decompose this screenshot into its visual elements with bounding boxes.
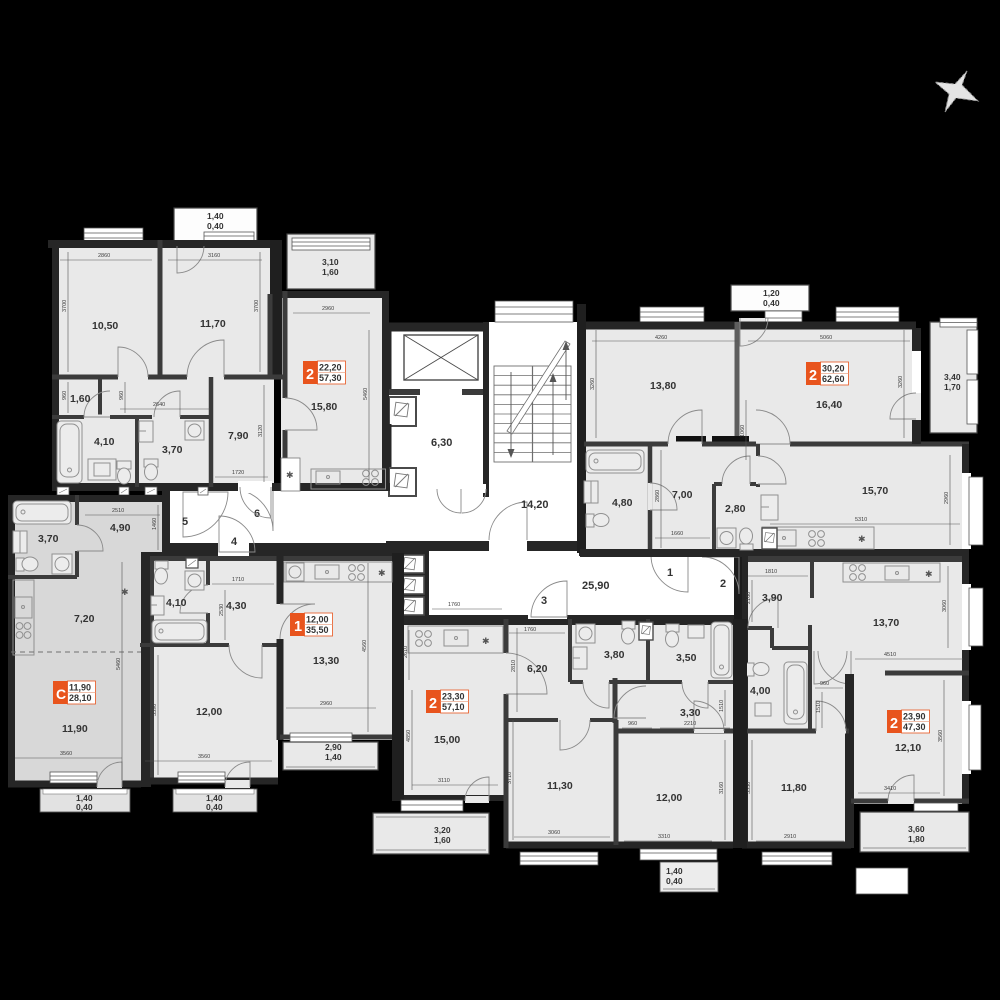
svg-text:5460: 5460 (363, 388, 369, 400)
svg-text:2640: 2640 (153, 402, 165, 408)
svg-text:1: 1 (294, 619, 302, 635)
svg-text:0,40: 0,40 (206, 802, 223, 812)
svg-text:10,50: 10,50 (92, 320, 118, 332)
svg-text:3310: 3310 (658, 834, 670, 840)
svg-text:3,30: 3,30 (680, 707, 701, 719)
svg-text:5060: 5060 (820, 335, 832, 341)
svg-text:3,70: 3,70 (162, 444, 183, 456)
svg-text:22,20: 22,20 (319, 363, 342, 373)
svg-text:0,40: 0,40 (763, 298, 780, 308)
svg-text:30,20: 30,20 (822, 364, 845, 374)
svg-text:3060: 3060 (548, 830, 560, 836)
svg-text:2210: 2210 (684, 721, 696, 727)
svg-text:6,20: 6,20 (527, 663, 548, 675)
svg-text:1760: 1760 (448, 602, 460, 608)
svg-text:960: 960 (119, 391, 125, 400)
svg-text:1,40: 1,40 (325, 752, 342, 762)
svg-text:5310: 5310 (855, 517, 867, 523)
svg-text:3,20: 3,20 (434, 825, 451, 835)
svg-text:4510: 4510 (884, 652, 896, 658)
svg-text:3,70: 3,70 (38, 533, 59, 545)
svg-text:4560: 4560 (362, 640, 368, 652)
svg-text:1: 1 (667, 567, 673, 579)
svg-text:16,40: 16,40 (816, 399, 842, 411)
svg-text:5460: 5460 (116, 658, 122, 670)
svg-text:7,90: 7,90 (228, 430, 249, 442)
svg-text:23,90: 23,90 (903, 712, 926, 722)
svg-text:2: 2 (429, 696, 437, 712)
svg-text:3560: 3560 (198, 754, 210, 760)
svg-text:960: 960 (62, 391, 68, 400)
svg-text:1,60: 1,60 (322, 267, 339, 277)
svg-text:4260: 4260 (655, 335, 667, 341)
svg-text:3160: 3160 (719, 782, 725, 794)
svg-text:3260: 3260 (590, 378, 596, 390)
svg-text:2810: 2810 (511, 660, 517, 672)
svg-text:2530: 2530 (219, 604, 225, 616)
svg-text:3,60: 3,60 (908, 824, 925, 834)
svg-text:2: 2 (306, 367, 314, 383)
svg-text:11,70: 11,70 (200, 318, 226, 330)
svg-text:3060: 3060 (942, 600, 948, 612)
svg-text:2960: 2960 (944, 492, 950, 504)
svg-text:960: 960 (820, 681, 829, 687)
svg-text:13,80: 13,80 (650, 380, 676, 392)
svg-text:960: 960 (628, 721, 637, 727)
svg-text:4,80: 4,80 (612, 497, 633, 509)
svg-text:4,30: 4,30 (226, 600, 247, 612)
svg-text:3110: 3110 (438, 778, 450, 784)
svg-text:C: C (56, 686, 66, 702)
svg-text:2860: 2860 (655, 490, 661, 502)
svg-text:3,80: 3,80 (604, 649, 625, 661)
svg-text:7,00: 7,00 (672, 489, 693, 501)
svg-text:3710: 3710 (507, 772, 513, 784)
svg-text:3,40: 3,40 (944, 372, 961, 382)
svg-text:2: 2 (890, 716, 898, 732)
svg-text:3: 3 (541, 595, 547, 607)
svg-text:11,90: 11,90 (69, 683, 91, 693)
svg-text:14,20: 14,20 (521, 499, 549, 511)
svg-text:15,00: 15,00 (434, 734, 460, 746)
svg-text:0,40: 0,40 (76, 802, 93, 812)
svg-text:✱: ✱ (858, 534, 866, 544)
svg-text:2160: 2160 (746, 592, 752, 604)
svg-text:0,40: 0,40 (207, 221, 224, 231)
svg-text:15,70: 15,70 (862, 485, 888, 497)
svg-text:✱: ✱ (378, 568, 386, 578)
svg-text:3,50: 3,50 (676, 652, 697, 664)
svg-text:62,60: 62,60 (822, 374, 845, 384)
svg-text:4,10: 4,10 (166, 597, 187, 609)
svg-text:1,70: 1,70 (944, 382, 961, 392)
svg-text:2960: 2960 (322, 306, 334, 312)
svg-text:2510: 2510 (112, 508, 124, 514)
svg-text:2,80: 2,80 (725, 503, 746, 515)
svg-text:3700: 3700 (62, 300, 68, 312)
svg-text:1460: 1460 (152, 518, 158, 530)
svg-text:1,20: 1,20 (763, 288, 780, 298)
svg-text:3700: 3700 (254, 300, 260, 312)
svg-text:57,10: 57,10 (442, 702, 465, 712)
svg-text:1660: 1660 (671, 531, 683, 537)
svg-text:2960: 2960 (320, 701, 332, 707)
svg-text:3390: 3390 (152, 704, 158, 716)
svg-text:2860: 2860 (98, 253, 110, 259)
svg-text:1720: 1720 (232, 470, 244, 476)
svg-text:0,40: 0,40 (666, 876, 683, 886)
svg-text:1,80: 1,80 (908, 834, 925, 844)
svg-text:1710: 1710 (232, 577, 244, 583)
svg-text:57,30: 57,30 (319, 373, 342, 383)
svg-text:4850: 4850 (406, 730, 412, 742)
svg-text:1510: 1510 (719, 700, 725, 712)
svg-text:35,50: 35,50 (306, 625, 329, 635)
svg-text:4: 4 (231, 536, 238, 548)
svg-text:2,90: 2,90 (325, 742, 342, 752)
svg-text:✱: ✱ (925, 569, 933, 579)
svg-text:12,00: 12,00 (196, 706, 222, 718)
svg-text:✱: ✱ (286, 470, 294, 480)
svg-text:5: 5 (182, 516, 188, 528)
svg-text:11,90: 11,90 (62, 723, 88, 735)
svg-text:3260: 3260 (898, 376, 904, 388)
svg-text:3560: 3560 (60, 751, 72, 757)
svg-text:4,00: 4,00 (750, 685, 771, 697)
svg-text:2: 2 (720, 578, 726, 590)
svg-text:25,90: 25,90 (582, 580, 610, 592)
svg-text:11,30: 11,30 (547, 780, 573, 792)
svg-text:1060: 1060 (740, 425, 746, 437)
svg-text:1,40: 1,40 (666, 866, 683, 876)
svg-text:23,30: 23,30 (442, 692, 465, 702)
svg-text:3,90: 3,90 (762, 592, 783, 604)
svg-text:1510: 1510 (816, 701, 822, 713)
svg-text:12,00: 12,00 (306, 615, 329, 625)
svg-text:4,90: 4,90 (110, 522, 131, 534)
svg-text:✱: ✱ (482, 636, 490, 646)
svg-text:2: 2 (809, 368, 817, 384)
svg-text:7,20: 7,20 (74, 613, 95, 625)
svg-text:1760: 1760 (524, 627, 536, 633)
svg-text:13,30: 13,30 (313, 655, 339, 667)
svg-text:28,10: 28,10 (69, 693, 92, 703)
svg-text:1,60: 1,60 (70, 393, 91, 405)
svg-text:47,30: 47,30 (903, 722, 926, 732)
svg-text:2610: 2610 (403, 646, 409, 658)
svg-text:1810: 1810 (765, 569, 777, 575)
svg-text:13,70: 13,70 (873, 617, 899, 629)
svg-text:6,30: 6,30 (431, 437, 452, 449)
svg-text:2910: 2910 (784, 834, 796, 840)
svg-text:15,80: 15,80 (311, 401, 337, 413)
svg-text:11,80: 11,80 (781, 782, 807, 794)
svg-text:4,10: 4,10 (94, 436, 115, 448)
svg-text:1,60: 1,60 (434, 835, 451, 845)
svg-text:3160: 3160 (208, 253, 220, 259)
svg-text:3120: 3120 (258, 425, 264, 437)
svg-text:3410: 3410 (884, 786, 896, 792)
svg-text:3560: 3560 (938, 730, 944, 742)
svg-text:12,00: 12,00 (656, 792, 682, 804)
svg-text:12,10: 12,10 (895, 742, 921, 754)
svg-text:1,40: 1,40 (207, 211, 224, 221)
svg-text:3,10: 3,10 (322, 257, 339, 267)
